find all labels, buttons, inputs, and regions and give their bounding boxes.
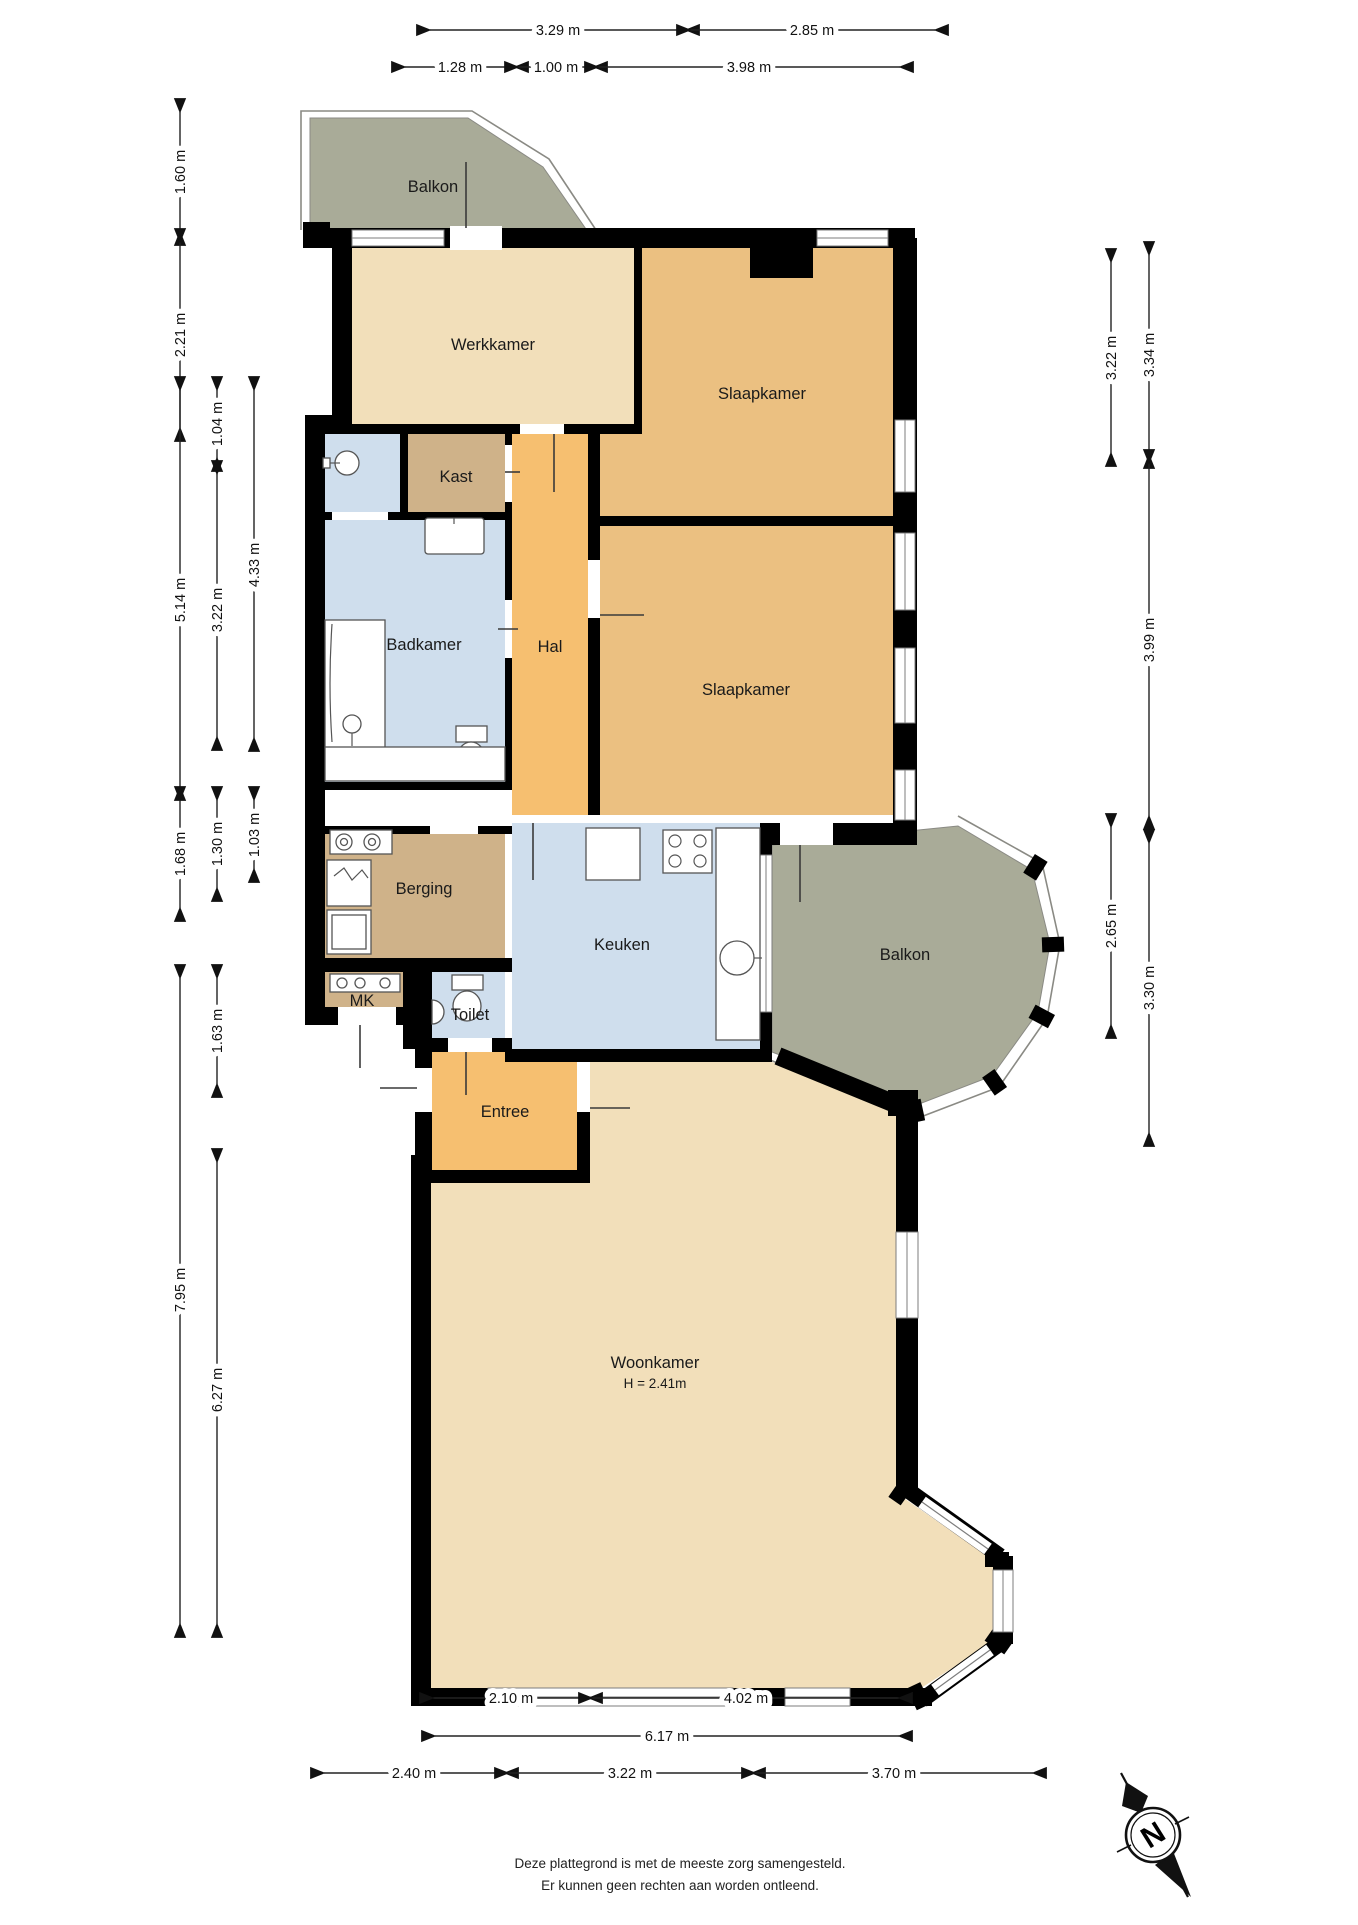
dim-left-1_60: 1.60 m [173, 150, 189, 194]
room-hal [512, 434, 588, 815]
room-balkon-top [310, 118, 588, 232]
label-entree: Entree [481, 1103, 530, 1121]
dim-top-2_85: 2.85 m [790, 23, 834, 39]
meter-cabinet-fixtures [330, 974, 400, 992]
room-badkamer-nook [325, 434, 400, 512]
disclaimer-line-2: Er kunnen geen rechten aan worden ontlee… [541, 1878, 819, 1893]
north-compass-icon: N [1117, 1773, 1191, 1897]
floorplan-drawing: Balkon Werkkamer Slaapkamer Kast Badkame… [0, 0, 1358, 1920]
room-slaapkamer-1 [600, 248, 893, 516]
label-berging: Berging [396, 880, 453, 898]
disclaimer-line-1: Deze plattegrond is met de meeste zorg s… [515, 1856, 846, 1871]
dim-right-3_34: 3.34 m [1142, 333, 1158, 377]
label-slaapkamer-1: Slaapkamer [718, 385, 807, 403]
label-hal: Hal [538, 638, 563, 656]
dim-bottom-4_02: 4.02 m [724, 1691, 768, 1707]
dim-top-1_00: 1.00 m [534, 60, 578, 76]
dim-left-7_95: 7.95 m [173, 1268, 189, 1312]
disclaimer: Deze plattegrond is met de meeste zorg s… [515, 1856, 846, 1893]
label-woonkamer: Woonkamer [611, 1354, 700, 1372]
label-toilet: Toilet [451, 1006, 490, 1024]
dim-bottom-3_22: 3.22 m [608, 1766, 652, 1782]
dim-left-5_14: 5.14 m [173, 578, 189, 622]
dim-top-3_29: 3.29 m [536, 23, 580, 39]
dim-left-6_27: 6.27 m [210, 1368, 226, 1412]
bathtub [325, 620, 385, 748]
dim-right-3_22: 3.22 m [1104, 336, 1120, 380]
washer [330, 830, 392, 854]
appliance [327, 910, 371, 954]
washbasin [425, 518, 484, 554]
dim-bottom-2_10: 2.10 m [489, 1691, 533, 1707]
dim-right-2_65: 2.65 m [1104, 904, 1120, 948]
dim-bottom-2_40: 2.40 m [392, 1766, 436, 1782]
badkamer-counter [325, 747, 505, 781]
stove [663, 830, 712, 873]
dim-left-1_63: 1.63 m [210, 1009, 226, 1053]
room-slaapkamer-2 [600, 526, 893, 815]
dim-right-3_30: 3.30 m [1142, 966, 1158, 1010]
label-slaapkamer-2: Slaapkamer [702, 681, 791, 699]
label-keuken: Keuken [594, 936, 650, 954]
dim-left-1_03: 1.03 m [247, 813, 263, 857]
dim-left-2_21: 2.21 m [173, 313, 189, 357]
dim-top-1_28: 1.28 m [438, 60, 482, 76]
dim-left-1_68: 1.68 m [173, 832, 189, 876]
dim-left-4_33: 4.33 m [247, 543, 263, 587]
dim-left-1_04: 1.04 m [210, 402, 226, 446]
label-woonkamer-height: H = 2.41m [624, 1376, 687, 1391]
label-balkon-right: Balkon [880, 946, 930, 964]
floorplan-page: Balkon Werkkamer Slaapkamer Kast Badkame… [0, 0, 1358, 1920]
dim-left-3_22: 3.22 m [210, 588, 226, 632]
laundry-tub [327, 860, 371, 906]
dim-top-3_98: 3.98 m [727, 60, 771, 76]
dim-left-1_30: 1.30 m [210, 822, 226, 866]
dim-bottom-3_70: 3.70 m [872, 1766, 916, 1782]
label-mk: MK [350, 992, 375, 1010]
label-badkamer: Badkamer [386, 636, 462, 654]
label-balkon-top: Balkon [408, 178, 458, 196]
dim-bottom-6_17: 6.17 m [645, 1729, 689, 1745]
dim-right-3_99: 3.99 m [1142, 618, 1158, 662]
label-kast: Kast [439, 468, 472, 486]
label-werkkamer: Werkkamer [451, 336, 536, 354]
